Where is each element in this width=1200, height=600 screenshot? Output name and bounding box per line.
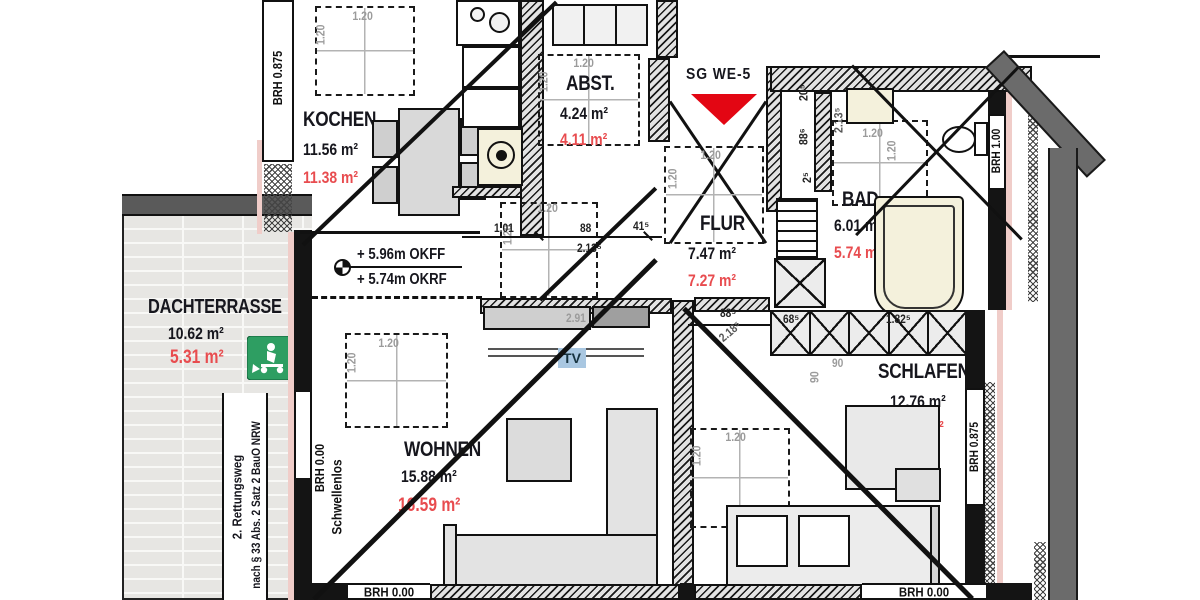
room-area-calc-abst: 4.11 m²: [560, 130, 607, 150]
roof-edge-band-vertical: [1048, 148, 1078, 600]
skylight-schlafen-width: 1.20: [725, 430, 746, 444]
level-line: [350, 266, 462, 268]
shaft-box: [774, 258, 826, 308]
roof-ridge-line: [1004, 55, 1100, 58]
wall-south-segment: [986, 583, 1032, 600]
wall-wohnen-north-dashed: [312, 296, 482, 299]
wall-insulation-bedroom-east: [997, 310, 1003, 600]
sink-bowl: [489, 12, 510, 33]
wall-abst-entrance-top: [656, 0, 678, 58]
sill-label-kitchen-window: BRH 0.875: [271, 51, 285, 105]
wall-bedroom-east-upper: [965, 310, 985, 388]
kitchen-counter-unit: [462, 88, 520, 128]
dim-2-91: 2.91: [566, 311, 586, 325]
room-area-kochen: 11.56 m²: [303, 140, 358, 160]
radiator: [776, 198, 818, 258]
entrance-marker-triangle: [691, 94, 757, 125]
washing-machine-door-center: [496, 150, 507, 161]
wardrobe-section: [848, 312, 887, 354]
floorplan-canvas: DACHTERRASSE 10.62 m² 5.31 m² 2. Rettung…: [0, 0, 1200, 600]
room-name-schlafen: SCHLAFEN: [878, 360, 970, 384]
wall-left-lower: [294, 478, 312, 600]
skylight-abst-width: 1.20: [573, 56, 594, 70]
dim-20-5: 20⁵: [797, 84, 811, 101]
bathtub-inner: [883, 205, 955, 309]
bathtub: [874, 196, 964, 318]
room-name-dachterrasse: DACHTERRASSE: [148, 296, 282, 319]
barrier-free-label: Schwellenlos: [330, 459, 345, 534]
skylight-kitchen-height: 1.20: [313, 24, 327, 45]
wall-south-pier: [680, 583, 694, 600]
skylight-bad-height: 1.20: [884, 140, 898, 161]
dim-90-v: 90: [807, 371, 821, 383]
insulation-bedroom-east: [985, 382, 995, 600]
sill-label-bedroom-window: BRH 0.875: [969, 422, 981, 472]
abst-shelf-divider: [615, 4, 617, 46]
level-marker-icon: [334, 259, 351, 276]
sill-label-living-window: BRH 0.00: [364, 585, 414, 600]
dim-88: 88: [580, 221, 591, 235]
room-area-dachterrasse: 10.62 m²: [168, 324, 224, 344]
abst-shelf-divider: [583, 4, 585, 46]
wardrobe-section: [809, 312, 848, 354]
wall-insulation-topleft: [264, 164, 292, 232]
sill-label-terrace-door: BRH 0.00: [313, 444, 327, 492]
emergency-exit-sign-icon: [247, 336, 291, 380]
room-name-flur: FLUR: [700, 212, 745, 236]
wall-line-kitchen-south: [300, 231, 480, 234]
room-name-abst: ABST.: [566, 72, 615, 96]
wall-south-hatch: [694, 584, 862, 600]
dim-41-5: 41⁵: [633, 219, 649, 233]
bath-sink: [846, 88, 894, 124]
skylight-bad-width: 1.20: [862, 126, 883, 140]
sill-label-bedroom-south-window: BRH 0.00: [899, 585, 949, 600]
dim-1-82-5: 1.82⁵: [886, 312, 911, 326]
skylight-wohnen-width: 1.20: [378, 336, 399, 350]
kitchen-sink-counter: [456, 0, 520, 46]
insulation-strip-topleft: [257, 140, 262, 234]
toilet-tank: [974, 122, 988, 156]
dim-88-6: 88⁶: [797, 128, 811, 145]
dim-2-5: 2⁵: [800, 172, 814, 183]
sink-bowl: [470, 7, 485, 22]
skylight-mid-width: 1.20: [537, 201, 558, 215]
coffee-table: [506, 418, 572, 482]
skylight-wohnen-height: 1.20: [344, 352, 358, 373]
dining-chair: [372, 120, 398, 158]
room-area-calc-flur: 7.27 m²: [688, 271, 736, 291]
wardrobe: [770, 310, 968, 356]
escape-route-line2: nach § 33 Abs. 2 Satz 2 BauO NRW: [251, 421, 263, 589]
room-name-kochen: KOCHEN: [303, 108, 376, 132]
sill-label-bath-window: BRH 1.00: [991, 129, 1003, 173]
dimension-chain-line: [462, 236, 662, 238]
bed-pillow: [798, 515, 850, 567]
terrace-door-opening: [294, 392, 312, 478]
wall-bad-west: [814, 92, 832, 192]
room-area-calc-kochen: 11.38 m²: [303, 168, 358, 188]
wall-south-hatch: [430, 584, 680, 600]
bed-pillow: [736, 515, 788, 567]
room-area-flur: 7.47 m²: [688, 244, 736, 264]
dim-68-5: 68⁵: [783, 312, 799, 326]
room-area-abst: 4.24 m²: [560, 104, 608, 124]
skylight-kitchen-width: 1.20: [352, 9, 373, 23]
level-okrf: + 5.74m OKRF: [357, 271, 447, 289]
level-okff: + 5.96m OKFF: [357, 246, 445, 264]
abst-shelf: [552, 4, 648, 46]
insulation-bottom-right: [1034, 542, 1046, 600]
skylight-flur-width: 1.20: [700, 148, 721, 162]
skylight-flur-height: 1.20: [665, 168, 679, 189]
roof-terrace-deck: [122, 214, 312, 600]
wall-kitchen-south: [452, 186, 522, 198]
wall-insulation-bad-east: [1006, 92, 1012, 310]
skylight-schlafen-height: 1.20: [689, 445, 703, 466]
dim-1-01: 1.01: [494, 221, 514, 235]
wall-entrance-left: [648, 58, 670, 142]
room-area-calc-dachterrasse: 5.31 m²: [170, 347, 224, 369]
skylight-abst-height: 1.20: [536, 71, 550, 92]
dim-90-h: 90: [832, 356, 843, 370]
escape-route-line1: 2. Rettungsweg: [230, 455, 245, 540]
unit-label: SG WE-5: [686, 66, 751, 84]
nightstand: [895, 468, 941, 502]
wardrobe-section: [927, 312, 966, 354]
wall-left-upper: [294, 230, 312, 392]
